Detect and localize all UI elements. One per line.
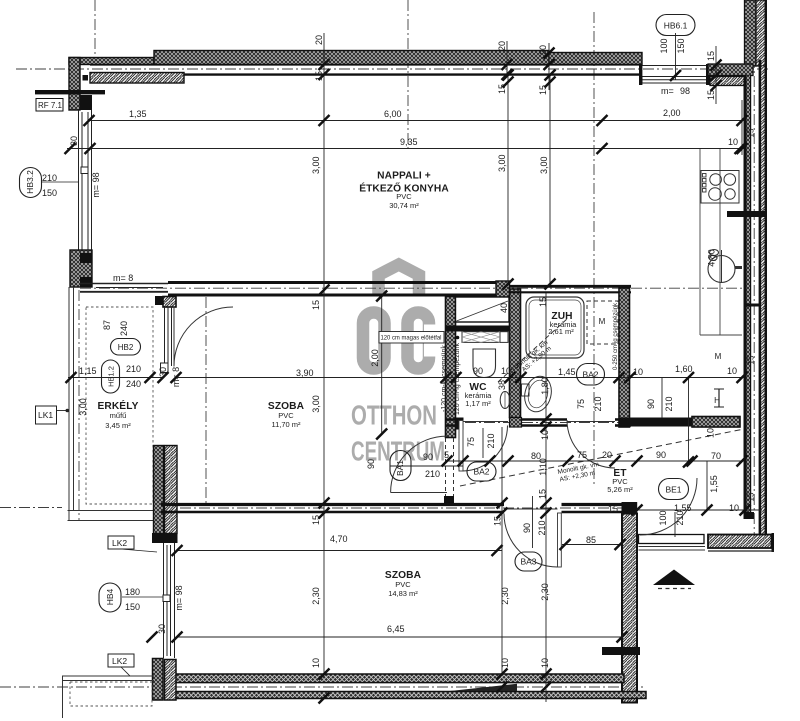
svg-text:OTTHON: OTTHON bbox=[351, 400, 437, 431]
svg-text:10: 10 bbox=[311, 658, 321, 668]
svg-text:15: 15 bbox=[538, 297, 548, 307]
svg-text:15: 15 bbox=[538, 489, 548, 499]
svg-text:90: 90 bbox=[522, 523, 532, 533]
svg-text:2,30: 2,30 bbox=[500, 587, 510, 605]
svg-text:15: 15 bbox=[747, 492, 756, 501]
svg-text:m= 8: m= 8 bbox=[113, 273, 133, 283]
svg-text:11,70 m²: 11,70 m² bbox=[271, 420, 301, 429]
svg-text:180: 180 bbox=[125, 587, 140, 597]
svg-text:3,00: 3,00 bbox=[497, 154, 507, 172]
svg-text:40: 40 bbox=[499, 303, 509, 313]
svg-text:1,17 m²: 1,17 m² bbox=[465, 399, 491, 408]
svg-text:15: 15 bbox=[747, 128, 756, 137]
svg-text:15: 15 bbox=[311, 300, 321, 310]
svg-text:150: 150 bbox=[42, 188, 57, 198]
svg-text:HB3.2: HB3.2 bbox=[25, 170, 35, 194]
svg-text:10: 10 bbox=[729, 503, 739, 513]
svg-text:10: 10 bbox=[501, 366, 511, 376]
svg-text:m= 98: m= 98 bbox=[91, 172, 101, 197]
svg-text:75: 75 bbox=[576, 399, 586, 409]
svg-text:210: 210 bbox=[126, 364, 141, 374]
svg-text:2,61 m²: 2,61 m² bbox=[548, 327, 574, 336]
svg-text:LK1: LK1 bbox=[38, 410, 53, 420]
svg-text:210: 210 bbox=[425, 469, 440, 479]
svg-text:2,30: 2,30 bbox=[311, 587, 321, 605]
svg-text:85: 85 bbox=[586, 535, 596, 545]
svg-text:m=: m= bbox=[661, 86, 674, 96]
svg-text:5,26 m²: 5,26 m² bbox=[607, 485, 633, 494]
svg-text:PVC: PVC bbox=[396, 192, 412, 201]
svg-text:100: 100 bbox=[658, 510, 668, 525]
svg-text:120 cm magas előtétfal: 120 cm magas előtétfal bbox=[381, 335, 442, 342]
svg-text:20: 20 bbox=[602, 450, 612, 460]
svg-text:75: 75 bbox=[577, 450, 587, 460]
svg-text:0-250 cm-ig csempézünk: 0-250 cm-ig csempézünk bbox=[613, 302, 619, 370]
svg-text:90: 90 bbox=[473, 366, 483, 376]
svg-text:műfű: műfű bbox=[110, 411, 127, 420]
svg-text:LK2: LK2 bbox=[112, 656, 127, 666]
svg-text:15: 15 bbox=[538, 85, 548, 95]
svg-text:1,45: 1,45 bbox=[558, 367, 576, 377]
svg-text:3,45 m²: 3,45 m² bbox=[105, 421, 131, 430]
svg-text:HB2: HB2 bbox=[118, 343, 134, 352]
svg-text:3,00: 3,00 bbox=[311, 395, 321, 413]
svg-text:BE1: BE1 bbox=[665, 485, 681, 495]
svg-text:87: 87 bbox=[102, 320, 112, 330]
svg-text:BA1: BA1 bbox=[395, 460, 405, 476]
svg-text:10: 10 bbox=[540, 658, 550, 668]
svg-text:3,90: 3,90 bbox=[296, 368, 314, 378]
svg-text:LK2: LK2 bbox=[112, 538, 127, 548]
svg-text:6,45: 6,45 bbox=[387, 624, 405, 634]
svg-text:BA2: BA2 bbox=[582, 370, 598, 380]
svg-text:PVC: PVC bbox=[278, 411, 294, 420]
svg-text:m= 98: m= 98 bbox=[174, 585, 184, 610]
svg-text:15: 15 bbox=[706, 51, 716, 61]
svg-text:3,00: 3,00 bbox=[311, 156, 321, 174]
svg-text:2,00: 2,00 bbox=[370, 349, 380, 367]
svg-text:HB1.2: HB1.2 bbox=[107, 366, 116, 387]
svg-text:100: 100 bbox=[659, 38, 669, 53]
svg-text:9,35: 9,35 bbox=[400, 137, 418, 147]
svg-text:5: 5 bbox=[444, 450, 449, 460]
svg-text:10: 10 bbox=[633, 367, 643, 377]
svg-text:38: 38 bbox=[497, 380, 507, 390]
svg-text:90: 90 bbox=[656, 450, 666, 460]
svg-text:2,30: 2,30 bbox=[540, 583, 550, 601]
svg-text:10: 10 bbox=[727, 366, 737, 376]
svg-text:90: 90 bbox=[423, 452, 433, 462]
svg-text:98: 98 bbox=[680, 86, 690, 96]
svg-text:15: 15 bbox=[608, 504, 618, 514]
svg-text:10: 10 bbox=[706, 428, 716, 438]
svg-text:210: 210 bbox=[537, 520, 547, 535]
svg-text:20: 20 bbox=[314, 35, 324, 45]
svg-text:15: 15 bbox=[706, 90, 716, 100]
svg-text:RF 7.1: RF 7.1 bbox=[38, 101, 63, 110]
svg-text:120 cm-ig csempézünk: 120 cm-ig csempézünk bbox=[454, 343, 461, 415]
svg-text:150: 150 bbox=[125, 602, 140, 612]
svg-text:240: 240 bbox=[126, 379, 141, 389]
svg-text:1,10: 1,10 bbox=[538, 458, 548, 476]
svg-text:75: 75 bbox=[466, 437, 476, 447]
svg-text:6,00: 6,00 bbox=[384, 109, 402, 119]
svg-text:240: 240 bbox=[119, 321, 129, 336]
svg-text:NAPPALI +: NAPPALI + bbox=[377, 171, 431, 182]
svg-text:30: 30 bbox=[69, 136, 79, 146]
svg-text:14,83 m²: 14,83 m² bbox=[388, 589, 418, 598]
svg-text:10: 10 bbox=[728, 137, 738, 147]
svg-text:10: 10 bbox=[540, 430, 550, 440]
svg-text:15: 15 bbox=[747, 355, 756, 364]
svg-text:90: 90 bbox=[646, 399, 656, 409]
svg-text:H: H bbox=[714, 396, 720, 405]
svg-text:30: 30 bbox=[157, 624, 167, 634]
svg-text:1,15: 1,15 bbox=[79, 366, 97, 376]
svg-text:210: 210 bbox=[664, 396, 674, 411]
svg-text:15: 15 bbox=[314, 71, 324, 81]
svg-text:1,80: 1,80 bbox=[540, 377, 550, 395]
svg-text:30,74 m²: 30,74 m² bbox=[389, 201, 419, 210]
svg-text:-120 cm-ig csempünk: -120 cm-ig csempünk bbox=[441, 345, 448, 412]
svg-text:20: 20 bbox=[497, 41, 507, 51]
svg-text:15: 15 bbox=[497, 84, 507, 94]
svg-text:30: 30 bbox=[158, 367, 168, 377]
svg-text:20: 20 bbox=[538, 45, 548, 55]
svg-text:HB6.1: HB6.1 bbox=[664, 21, 688, 31]
svg-text:210: 210 bbox=[675, 510, 685, 525]
svg-text:HB4: HB4 bbox=[105, 588, 115, 605]
svg-text:4,80: 4,80 bbox=[707, 249, 717, 267]
svg-text:210: 210 bbox=[486, 433, 496, 448]
svg-text:3,00: 3,00 bbox=[78, 398, 88, 416]
svg-text:70: 70 bbox=[711, 451, 721, 461]
svg-text:4,70: 4,70 bbox=[330, 534, 348, 544]
svg-text:2,00: 2,00 bbox=[663, 108, 681, 118]
svg-text:10: 10 bbox=[500, 658, 510, 668]
svg-text:1,35: 1,35 bbox=[129, 109, 147, 119]
svg-text:15: 15 bbox=[493, 516, 503, 526]
svg-text:150: 150 bbox=[676, 38, 686, 53]
svg-text:M: M bbox=[715, 352, 722, 361]
svg-text:1,60: 1,60 bbox=[675, 364, 693, 374]
svg-text:BA2: BA2 bbox=[473, 467, 489, 477]
svg-text:3,00: 3,00 bbox=[539, 156, 549, 174]
svg-text:90: 90 bbox=[366, 459, 376, 469]
svg-text:M: M bbox=[599, 317, 606, 326]
svg-text:210: 210 bbox=[42, 173, 57, 183]
svg-text:210: 210 bbox=[593, 396, 603, 411]
svg-text:15: 15 bbox=[311, 515, 321, 525]
svg-text:m= 8: m= 8 bbox=[171, 367, 181, 387]
svg-text:PVC: PVC bbox=[395, 580, 411, 589]
svg-text:1,55: 1,55 bbox=[709, 475, 719, 493]
svg-text:BA3: BA3 bbox=[520, 557, 536, 567]
